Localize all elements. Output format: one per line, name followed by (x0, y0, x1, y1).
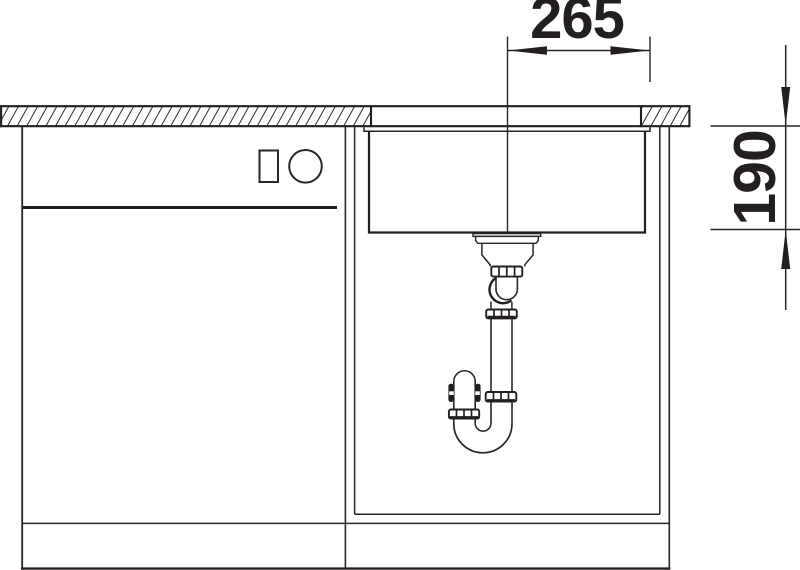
svg-text:190: 190 (722, 130, 788, 225)
svg-text:265: 265 (530, 0, 624, 51)
